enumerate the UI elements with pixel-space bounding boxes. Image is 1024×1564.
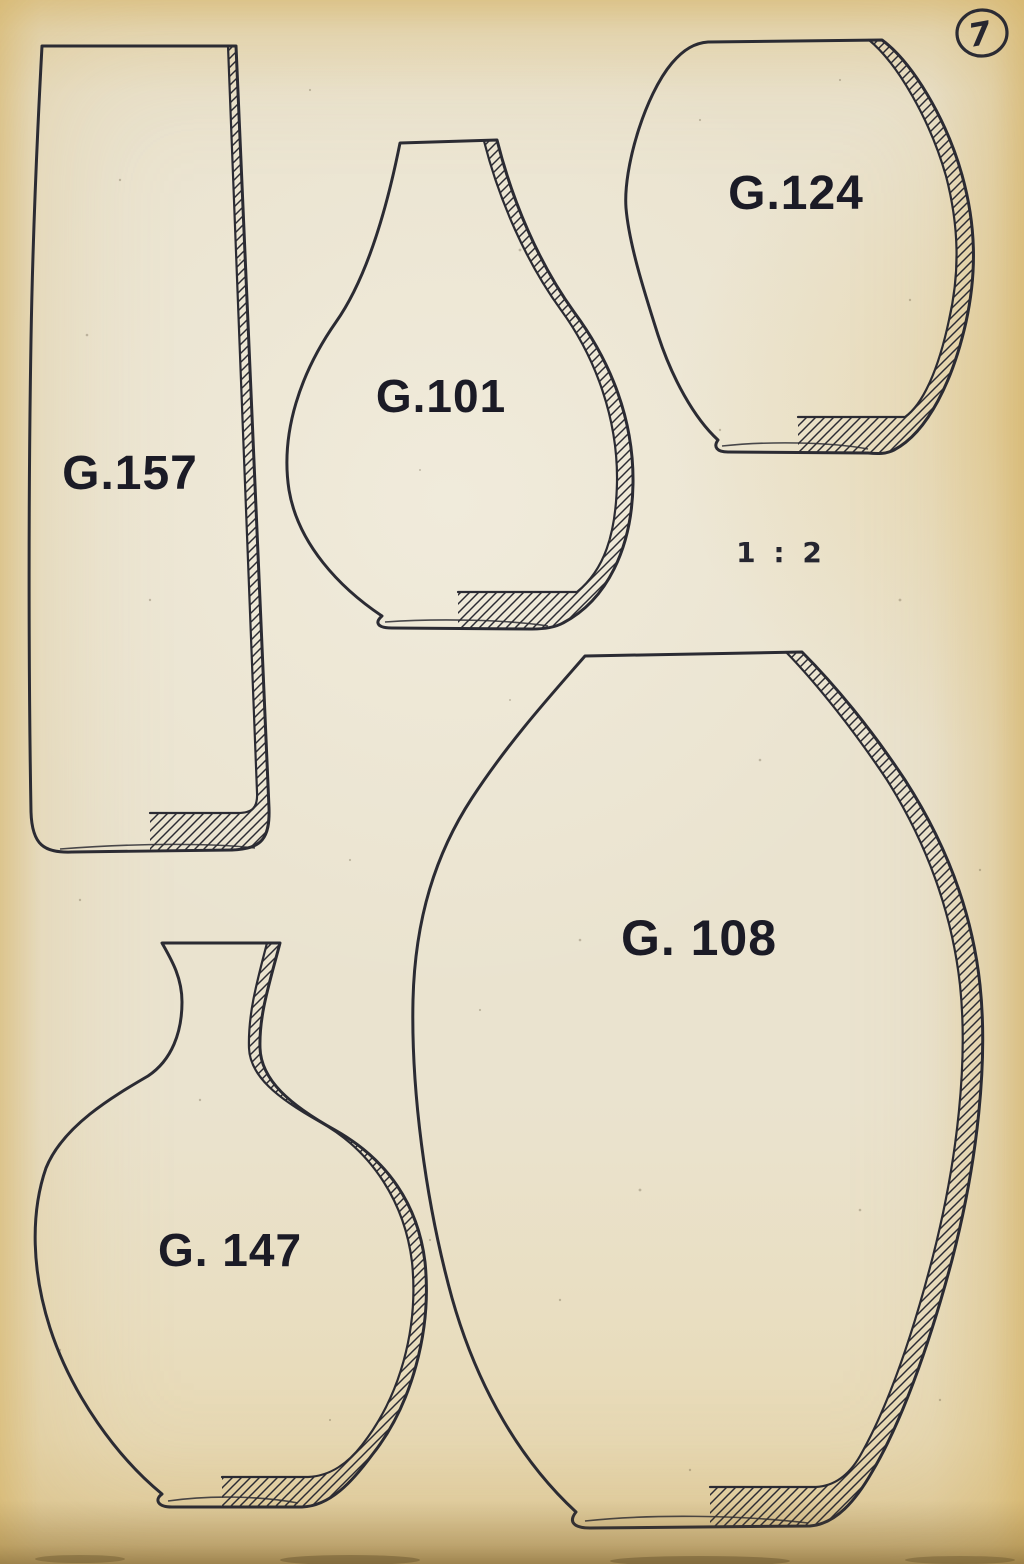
g108-inner-wall-line — [710, 652, 963, 1487]
figure-g124: G.124 — [626, 40, 974, 454]
figure-label-g124: G.124 — [728, 167, 864, 220]
page-number: 7 — [965, 13, 994, 54]
g101-inner-wall-line — [458, 141, 617, 592]
figure-label-g108: G. 108 — [621, 910, 777, 966]
figure-g101: G.101 — [287, 140, 633, 629]
scale-ratio-label: 1 : 2 — [736, 536, 826, 569]
g124-wall-hatch — [798, 40, 973, 454]
catalog-page: G.157 G.101 G.124 1 : 2 G. 147 — [0, 0, 1024, 1564]
page-number-badge: 7 — [955, 8, 1008, 57]
figure-g147: G. 147 — [35, 943, 426, 1507]
figure-g108: G. 108 — [413, 652, 983, 1528]
figure-label-g147: G. 147 — [158, 1224, 302, 1276]
g147-inner-wall-line — [222, 943, 413, 1477]
g124-inner-wall-line — [798, 40, 957, 417]
figure-label-g101: G.101 — [376, 370, 506, 422]
figure-g157: G.157 — [29, 46, 269, 852]
g108-wall-hatch — [710, 652, 983, 1527]
page-bottom-shadow — [0, 1500, 1024, 1564]
figure-label-g157: G.157 — [62, 447, 198, 500]
vase-profiles-drawing: G.157 G.101 G.124 1 : 2 G. 147 — [0, 0, 1024, 1564]
